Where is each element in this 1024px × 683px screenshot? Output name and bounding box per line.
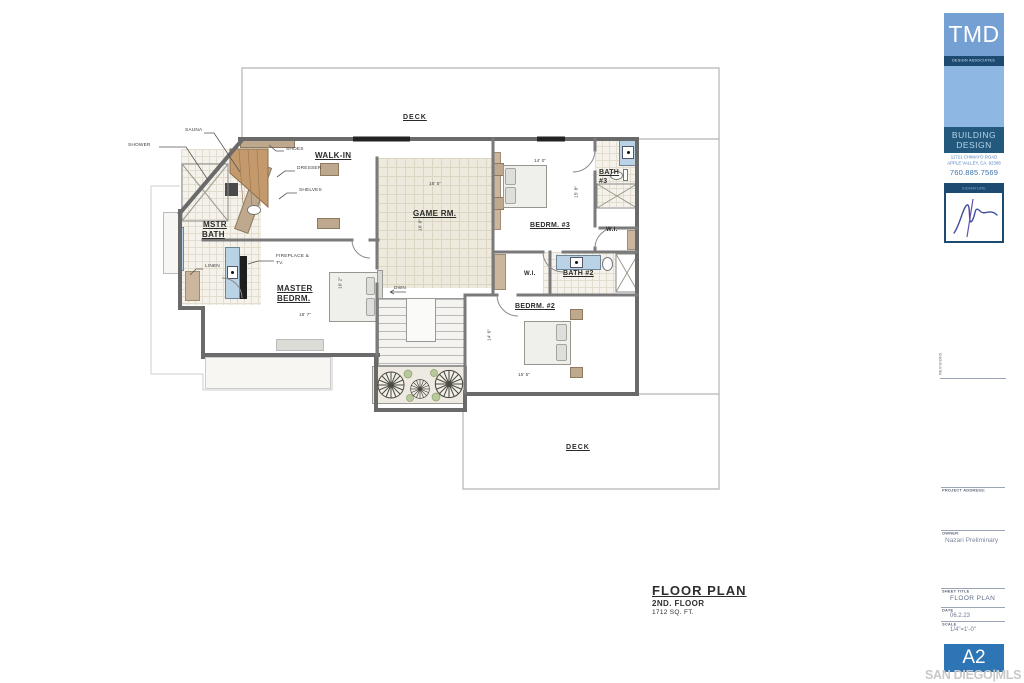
logo-subtitle: DESIGN ASSOCIATES xyxy=(953,59,996,63)
titleblock-divider xyxy=(941,530,1005,531)
firm-name-line2: DESIGN xyxy=(952,140,996,150)
firm-name-band: BUILDING DESIGN xyxy=(944,127,1004,153)
dim-game-width: 16' 5" xyxy=(429,182,441,187)
bush-icon xyxy=(404,370,412,378)
annotation-shelves: SHELVES xyxy=(299,188,322,193)
project-address-label: PROJECT ADDRESS: xyxy=(942,489,986,493)
leader-lines xyxy=(159,133,406,294)
room-label-bath2: BATH #2 xyxy=(563,270,594,278)
room-label-mstr-bath-2: BATH xyxy=(202,230,225,239)
signature-box: SIGNATURE xyxy=(944,183,1004,243)
bush-icon xyxy=(431,370,438,377)
scale-value: 1/4"=1'-0" xyxy=(950,627,976,633)
titleblock-divider xyxy=(941,487,1005,488)
room-label-bedrm3: BEDRM. #3 xyxy=(530,222,570,230)
plant-icons xyxy=(378,370,463,402)
room-label-wi3: W.I. xyxy=(606,227,618,234)
sauna-floor xyxy=(225,149,268,207)
plan-subtitle: 2ND. FLOOR xyxy=(652,599,747,608)
plan-title: FLOOR PLAN xyxy=(652,583,747,598)
firm-name-line1: BUILDING xyxy=(952,130,996,140)
plan-area: 1712 SQ. FT. xyxy=(652,609,747,616)
dim-bedrm2-height: 14' 6" xyxy=(487,329,492,341)
annotation-shower: SHOWER xyxy=(128,143,151,148)
plant-icon xyxy=(435,370,462,397)
signature-label: SIGNATURE xyxy=(962,187,986,191)
plan-linework xyxy=(0,0,1024,683)
sauna-heater xyxy=(225,183,238,196)
annotation-linen: LINEN xyxy=(205,264,220,269)
annotation-fireplace-2: TV. xyxy=(276,261,284,266)
signature-icon xyxy=(946,193,1002,241)
titleblock-divider xyxy=(941,607,1005,608)
annotation-dwn: DWN xyxy=(394,286,406,291)
room-label-bath3-1: BATH xyxy=(599,169,619,177)
plan-title-block: FLOOR PLAN 2ND. FLOOR 1712 SQ. FT. xyxy=(652,583,747,616)
firm-address: 11721 CHIMAYO ROAD APPLE VALLEY, CA. 923… xyxy=(947,155,1002,167)
titleblock-divider xyxy=(940,378,1006,379)
sheet-title-value: FLOOR PLAN xyxy=(950,595,995,602)
room-label-bath3-2: #3 xyxy=(599,178,607,186)
dim-bedrm3-height: 15' 8" xyxy=(574,186,579,198)
dim-game-height: 16' 8" xyxy=(418,219,423,231)
room-label-deck-top: DECK xyxy=(403,114,427,122)
annotation-shoes: SHOES xyxy=(286,147,304,152)
revisions-label: REVISIONS xyxy=(939,352,943,374)
room-label-master-bedrm-2: BEDRM. xyxy=(277,294,310,303)
annotation-fireplace-1: FIREPLACE & xyxy=(276,254,309,259)
dim-master-width: 18' 7" xyxy=(299,313,311,318)
titleblock-divider xyxy=(941,621,1005,622)
plant-icon xyxy=(411,380,430,399)
room-label-walk-in: WALK-IN xyxy=(315,151,351,160)
sheet-title-label: SHEET TITLE xyxy=(942,590,969,594)
owner-value: Nazari Preliminary xyxy=(945,537,998,544)
logo-light-panel xyxy=(944,66,1004,127)
logo-acronym: TMD xyxy=(948,21,999,48)
dim-bedrm2-width: 15' 5" xyxy=(518,373,530,378)
plant-icon xyxy=(378,372,404,398)
dim-bedrm3-width: 14' 0" xyxy=(534,159,546,164)
owner-label: OWNER: xyxy=(942,532,960,536)
annotation-dresser: DRESSER xyxy=(297,166,321,171)
annotation-sauna: SAUNA xyxy=(185,128,202,133)
date-value: 06.2.23 xyxy=(950,613,970,619)
room-label-master-bedrm-1: MASTER xyxy=(277,284,313,293)
firm-address-line2: APPLE VALLEY, CA. 92308 xyxy=(947,161,1002,167)
logo-block: TMD xyxy=(944,13,1004,56)
room-label-mstr-bath-1: MSTR xyxy=(203,220,227,229)
firm-phone: 760.885.7569 xyxy=(944,168,1004,177)
bush-icon xyxy=(432,393,440,401)
room-label-game-rm: GAME RM. xyxy=(413,209,456,218)
titleblock-divider xyxy=(941,588,1005,589)
room-label-wi2: W.I. xyxy=(524,271,536,278)
dim-master-height: 16' 2" xyxy=(338,277,343,289)
bush-icon xyxy=(407,395,414,402)
deck-outline xyxy=(242,68,719,489)
sheet-number: A2 xyxy=(962,647,985,669)
logo-subtitle-band: DESIGN ASSOCIATES xyxy=(944,56,1004,66)
watermark: SAN DIEGO|MLS xyxy=(925,668,1021,682)
drawing-sheet: DECK DECK WALK-IN MSTR BATH MASTER BEDRM… xyxy=(0,0,1024,683)
room-label-bedrm2: BEDRM. #2 xyxy=(515,303,555,311)
room-label-deck-bottom: DECK xyxy=(566,444,590,452)
